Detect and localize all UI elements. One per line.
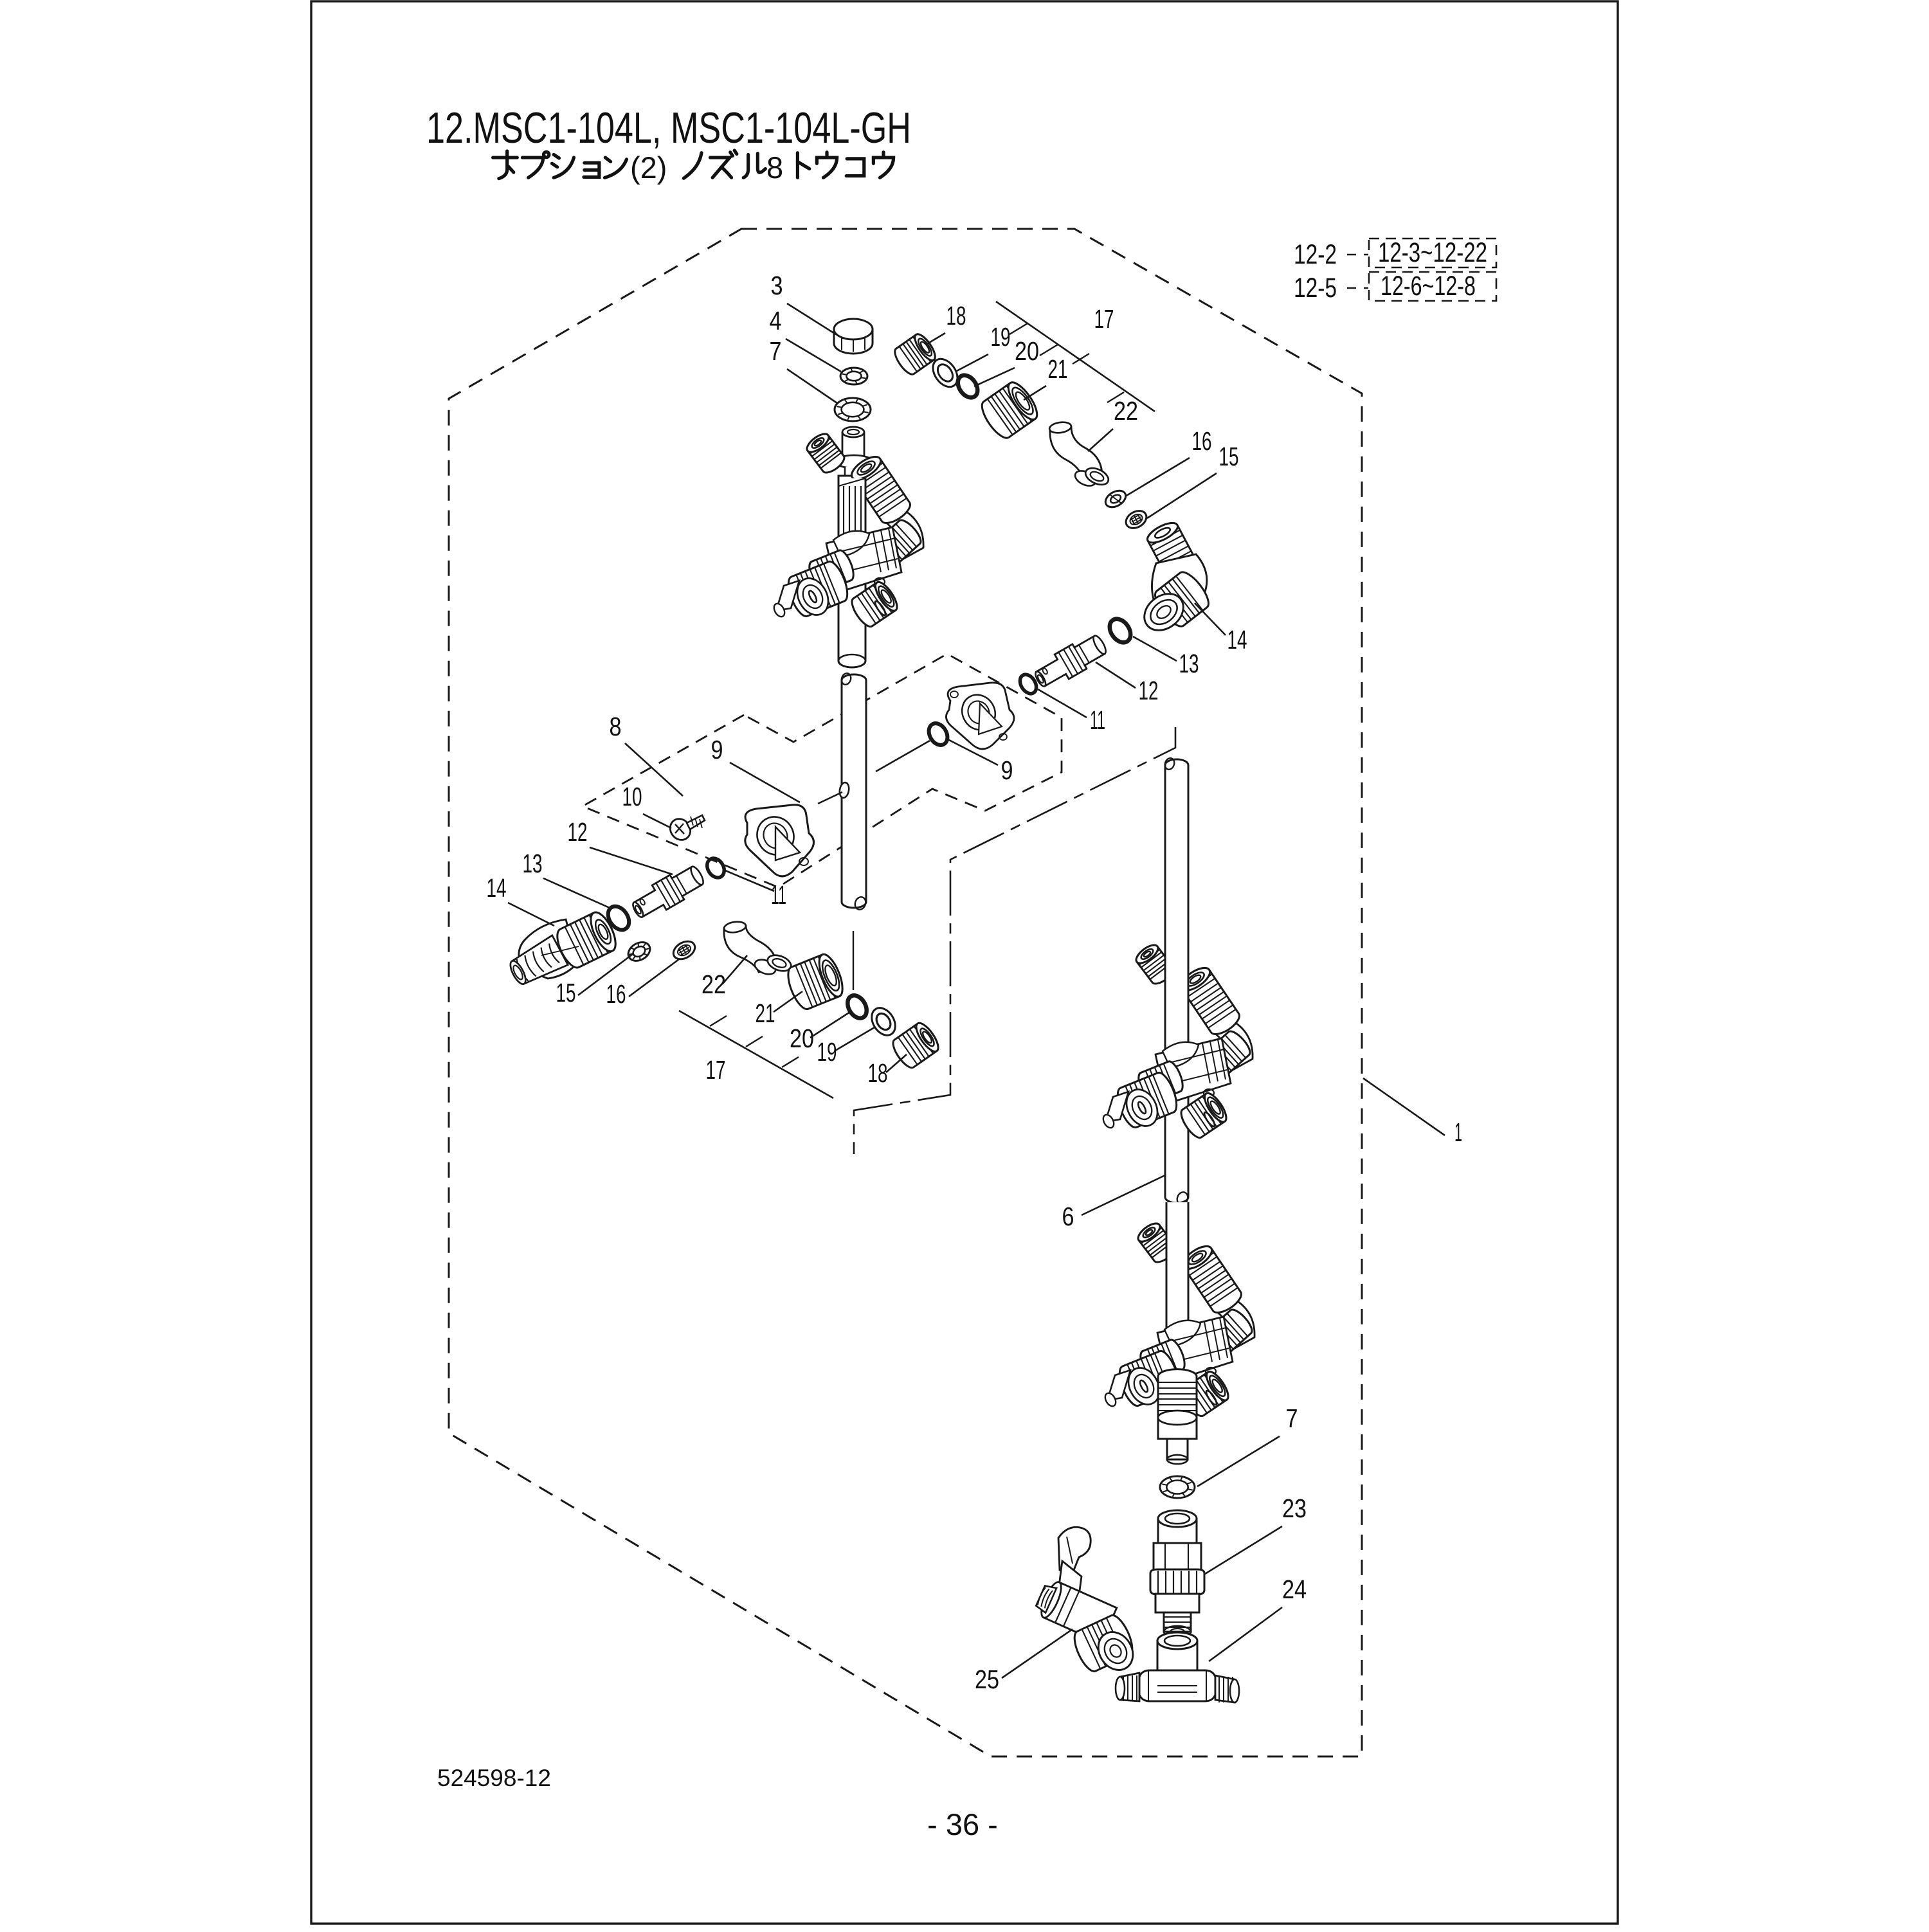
svg-text:14: 14 [487, 873, 507, 903]
svg-text:8: 8 [766, 150, 783, 185]
svg-text:7: 7 [1286, 1404, 1298, 1433]
svg-text:8: 8 [610, 712, 622, 741]
svg-text:19: 19 [991, 322, 1011, 352]
svg-text:1: 1 [1454, 1117, 1462, 1147]
svg-text:19: 19 [817, 1037, 837, 1067]
svg-text:12.MSC1-104L, MSC1-104L-GH: 12.MSC1-104L, MSC1-104L-GH [426, 104, 911, 152]
svg-text:11: 11 [771, 880, 786, 910]
svg-text:18: 18 [868, 1058, 888, 1088]
svg-text:11: 11 [1090, 705, 1105, 735]
svg-text:21: 21 [1048, 354, 1068, 384]
svg-text:12: 12 [1139, 676, 1159, 705]
svg-text:12-5: 12-5 [1294, 273, 1337, 303]
svg-text:6: 6 [1062, 1202, 1074, 1231]
svg-text:4: 4 [770, 306, 782, 336]
svg-text:16: 16 [1192, 426, 1212, 456]
svg-text:17: 17 [1094, 304, 1114, 334]
svg-text:13: 13 [523, 849, 543, 878]
svg-text:(2): (2) [630, 150, 667, 185]
svg-text:7: 7 [770, 336, 782, 366]
svg-text:12-6~12-8: 12-6~12-8 [1381, 271, 1476, 302]
svg-text:24: 24 [1282, 1575, 1307, 1604]
svg-text:9: 9 [1001, 755, 1013, 785]
svg-text:3: 3 [771, 271, 783, 300]
svg-text:15: 15 [1219, 442, 1239, 471]
svg-text:22: 22 [1114, 396, 1138, 426]
svg-text:13: 13 [1179, 649, 1199, 678]
svg-text:9: 9 [711, 735, 723, 764]
svg-text:- 36 -: - 36 - [927, 1807, 998, 1841]
svg-text:12-2: 12-2 [1294, 239, 1337, 270]
svg-text:21: 21 [756, 998, 775, 1028]
svg-text:14: 14 [1227, 625, 1247, 655]
svg-text:10: 10 [622, 782, 642, 811]
svg-text:22: 22 [702, 970, 726, 999]
svg-text:524598-12: 524598-12 [437, 1765, 551, 1791]
svg-text:20: 20 [790, 1024, 814, 1053]
svg-text:15: 15 [556, 978, 576, 1007]
svg-text:18: 18 [946, 301, 966, 330]
svg-text:23: 23 [1282, 1494, 1307, 1523]
svg-text:16: 16 [606, 979, 626, 1009]
svg-text:25: 25 [975, 1665, 999, 1694]
svg-text:17: 17 [706, 1055, 726, 1085]
svg-text:20: 20 [1015, 336, 1039, 366]
svg-text:12-3~12-22: 12-3~12-22 [1378, 237, 1487, 268]
svg-text:12: 12 [568, 817, 588, 847]
